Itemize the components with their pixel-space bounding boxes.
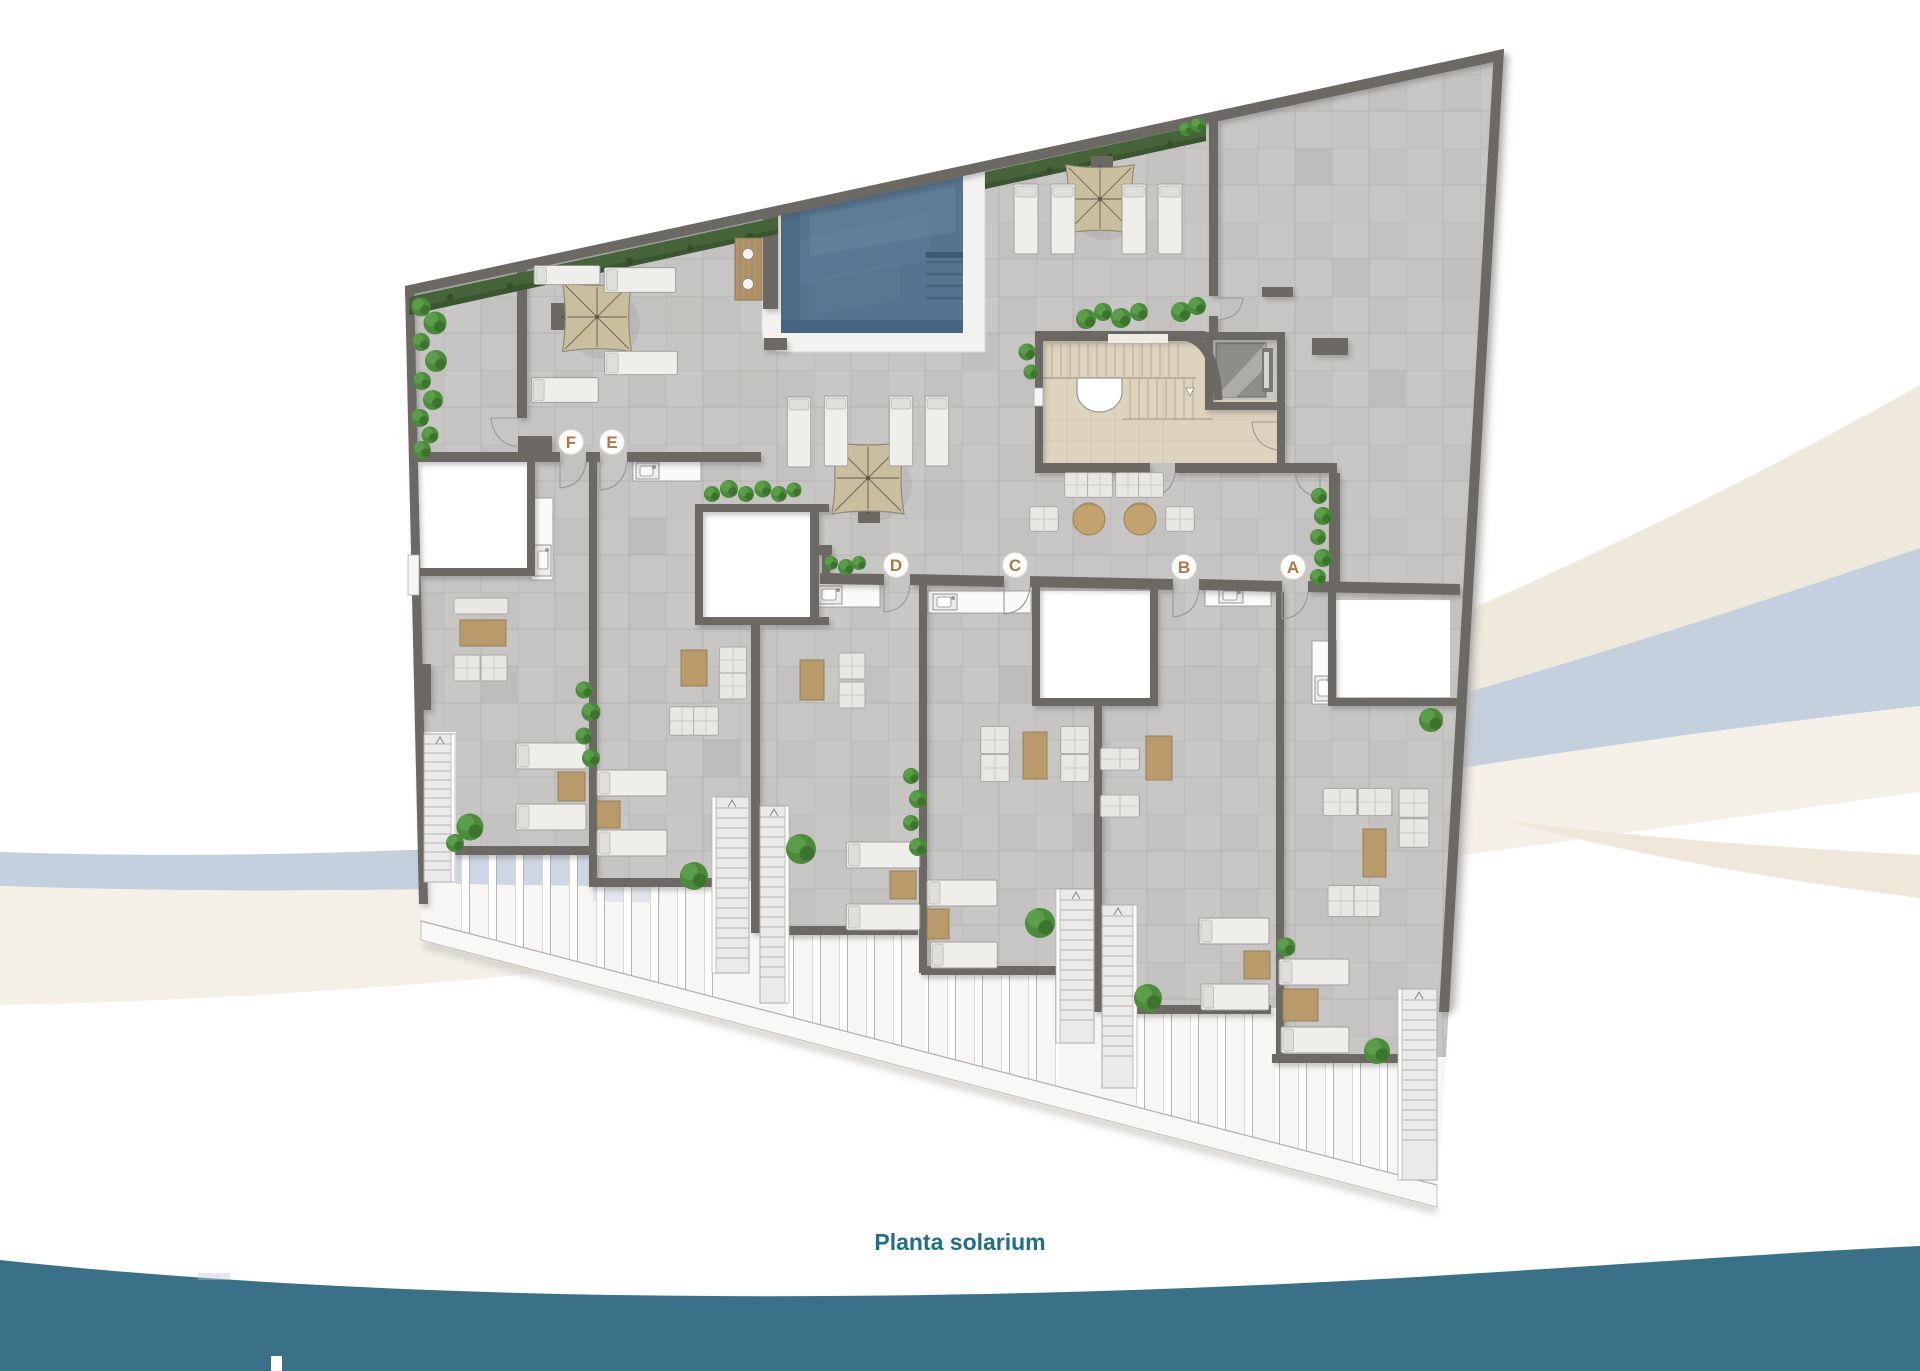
svg-text:C: C [1009,556,1021,575]
svg-text:E: E [606,433,617,452]
svg-text:D: D [890,556,902,575]
svg-text:A: A [1287,558,1299,577]
svg-text:Planta solarium: Planta solarium [874,1229,1045,1255]
svg-text:B: B [1178,558,1190,577]
svg-text:F: F [566,433,576,452]
